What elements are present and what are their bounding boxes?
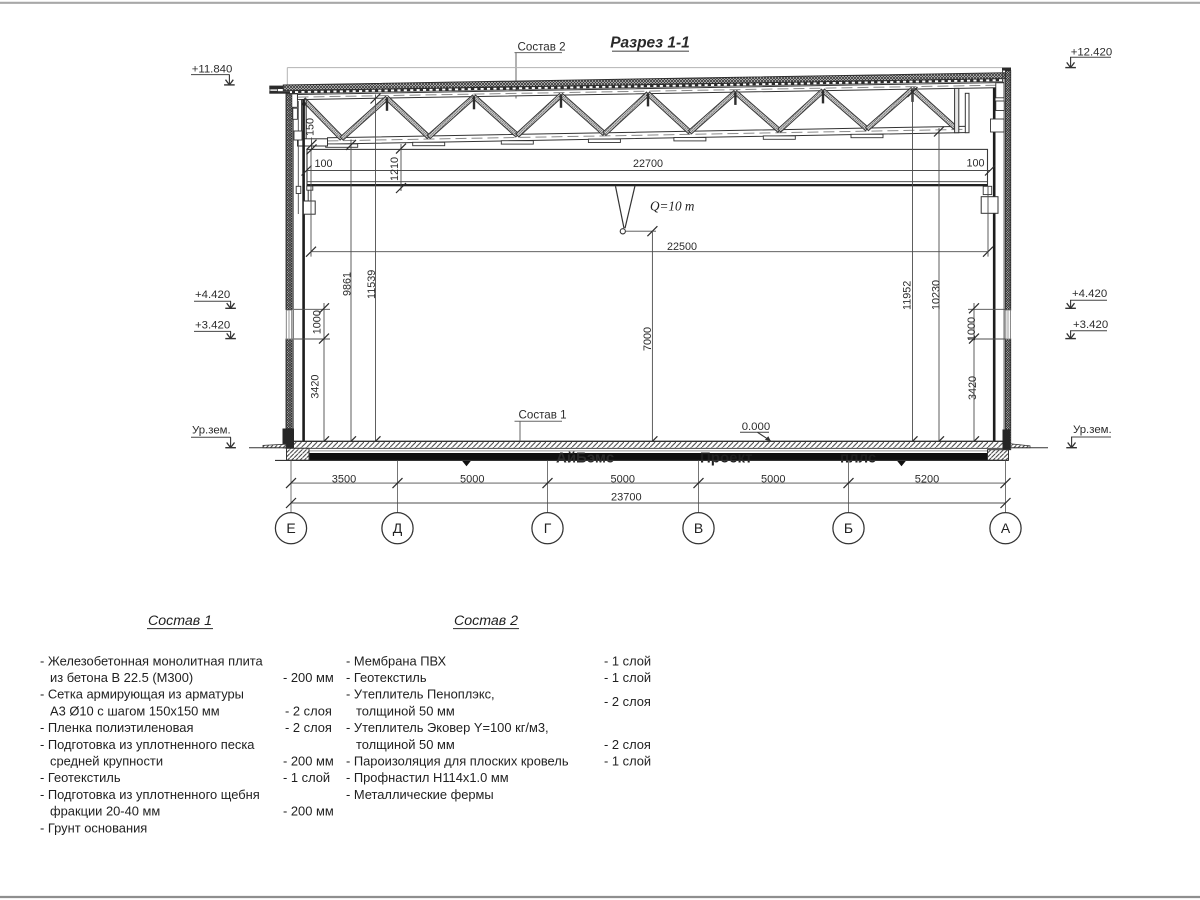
svg-text:1000: 1000 xyxy=(966,317,978,341)
svg-text:- 1 слой: - 1 слой xyxy=(604,653,651,668)
svg-text:Состав 2: Состав 2 xyxy=(518,40,566,53)
svg-text:22700: 22700 xyxy=(633,158,663,170)
svg-text:- 200 мм: - 200 мм xyxy=(283,804,334,819)
svg-text:Г: Г xyxy=(544,520,552,536)
svg-text:- Профнастил Н114х1.0 мм: - Профнастил Н114х1.0 мм xyxy=(346,770,509,785)
svg-text:- 200 мм: - 200 мм xyxy=(283,670,334,685)
svg-text:АйБэмс: АйБэмс xyxy=(556,449,614,466)
svg-text:- 2 слоя: - 2 слоя xyxy=(285,720,332,735)
svg-text:- 1 слой: - 1 слой xyxy=(283,770,330,785)
svg-text:11952: 11952 xyxy=(902,281,914,310)
svg-text:Состав 1: Состав 1 xyxy=(519,408,567,421)
svg-text:- Грунт основания: - Грунт основания xyxy=(40,820,147,835)
svg-text:фракции 20-40 мм: фракции 20-40 мм xyxy=(50,804,160,819)
svg-text:толщиной 50 мм: толщиной 50 мм xyxy=(356,703,455,718)
svg-text:- Железобетонная монолитная п: - Железобетонная монолитная плита xyxy=(40,653,264,668)
svg-text:- Металлические фермы: - Металлические фермы xyxy=(346,787,494,802)
svg-text:- Геотекстиль: - Геотекстиль xyxy=(346,670,427,685)
svg-text:3420: 3420 xyxy=(967,376,979,400)
svg-text:Состав 1: Состав 1 xyxy=(148,613,212,629)
svg-text:- Утеплитель Пеноплэкс,: - Утеплитель Пеноплэкс, xyxy=(346,687,495,702)
svg-text:5000: 5000 xyxy=(611,473,635,485)
svg-text:А: А xyxy=(1001,520,1011,536)
svg-text:Разрез 1-1: Разрез 1-1 xyxy=(610,35,690,52)
svg-text:9861: 9861 xyxy=(342,272,354,296)
svg-text:1210: 1210 xyxy=(389,157,401,181)
svg-text:Состав 2: Состав 2 xyxy=(454,613,518,629)
svg-text:- Геотекстиль: - Геотекстиль xyxy=(40,770,121,785)
svg-text:7000: 7000 xyxy=(642,327,654,351)
svg-text:- 2 слоя: - 2 слоя xyxy=(285,703,332,718)
svg-text:3420: 3420 xyxy=(310,375,322,399)
svg-text:1000: 1000 xyxy=(312,310,324,334)
svg-text:пллс: пллс xyxy=(840,449,876,466)
svg-text:100: 100 xyxy=(315,158,333,170)
svg-text:- Подготовка из уплотненного п: - Подготовка из уплотненного песка xyxy=(40,737,255,752)
svg-text:- 1 слой: - 1 слой xyxy=(604,670,651,685)
svg-text:- Подготовка из уплотненного щ: - Подготовка из уплотненного щебня xyxy=(40,787,260,802)
svg-text:+12.420: +12.420 xyxy=(1071,47,1113,59)
svg-text:23700: 23700 xyxy=(611,491,642,503)
svg-text:средней крупности: средней крупности xyxy=(50,754,163,769)
svg-text:- Мембрана ПВХ: - Мембрана ПВХ xyxy=(346,653,447,668)
svg-text:В: В xyxy=(694,520,703,536)
svg-text:- Пленка полиэтиленовая: - Пленка полиэтиленовая xyxy=(40,720,193,735)
svg-text:0.000: 0.000 xyxy=(742,421,771,433)
svg-text:11539: 11539 xyxy=(366,270,378,299)
svg-text:Проект: Проект xyxy=(700,449,752,466)
svg-text:- Сетка армирующая из арматуры: - Сетка армирующая из арматуры xyxy=(40,687,244,702)
svg-text:А3 Ø10 с шагом 150х150 мм: А3 Ø10 с шагом 150х150 мм xyxy=(50,703,220,718)
svg-text:из бетона В 22.5 (М300): из бетона В 22.5 (М300) xyxy=(50,670,193,685)
svg-text:- Утеплитель Эковер Y=100 кг/м: - Утеплитель Эковер Y=100 кг/м3, xyxy=(346,720,549,735)
svg-text:+11.840: +11.840 xyxy=(192,64,233,76)
svg-text:Б: Б xyxy=(844,520,853,536)
svg-text:Ур.зем.: Ур.зем. xyxy=(192,424,231,436)
svg-text:5200: 5200 xyxy=(915,473,939,485)
svg-text:+3.420: +3.420 xyxy=(195,320,230,332)
svg-text:+3.420: +3.420 xyxy=(1073,319,1108,331)
svg-text:- 2 слоя: - 2 слоя xyxy=(604,694,651,709)
svg-text:- Пароизоляция для плоских кро: - Пароизоляция для плоских кровель xyxy=(346,754,569,769)
svg-text:150: 150 xyxy=(304,118,316,136)
svg-text:5000: 5000 xyxy=(460,473,484,485)
svg-text:Е: Е xyxy=(286,520,295,536)
svg-text:+4.420: +4.420 xyxy=(195,289,230,301)
svg-text:+4.420: +4.420 xyxy=(1072,288,1107,300)
svg-text:- 200 мм: - 200 мм xyxy=(283,754,334,769)
svg-text:толщиной 50 мм: толщиной 50 мм xyxy=(356,737,455,752)
svg-text:100: 100 xyxy=(967,158,985,170)
svg-text:- 1 слой: - 1 слой xyxy=(604,754,651,769)
svg-text:22500: 22500 xyxy=(667,241,697,253)
svg-text:5000: 5000 xyxy=(761,473,785,485)
svg-text:3500: 3500 xyxy=(332,473,356,485)
svg-text:Q=10 m: Q=10 m xyxy=(650,199,694,214)
svg-text:- 2 слоя: - 2 слоя xyxy=(604,737,651,752)
svg-text:10230: 10230 xyxy=(931,280,943,310)
svg-text:Ур.зем.: Ур.зем. xyxy=(1073,424,1112,436)
svg-text:Д: Д xyxy=(393,520,403,536)
